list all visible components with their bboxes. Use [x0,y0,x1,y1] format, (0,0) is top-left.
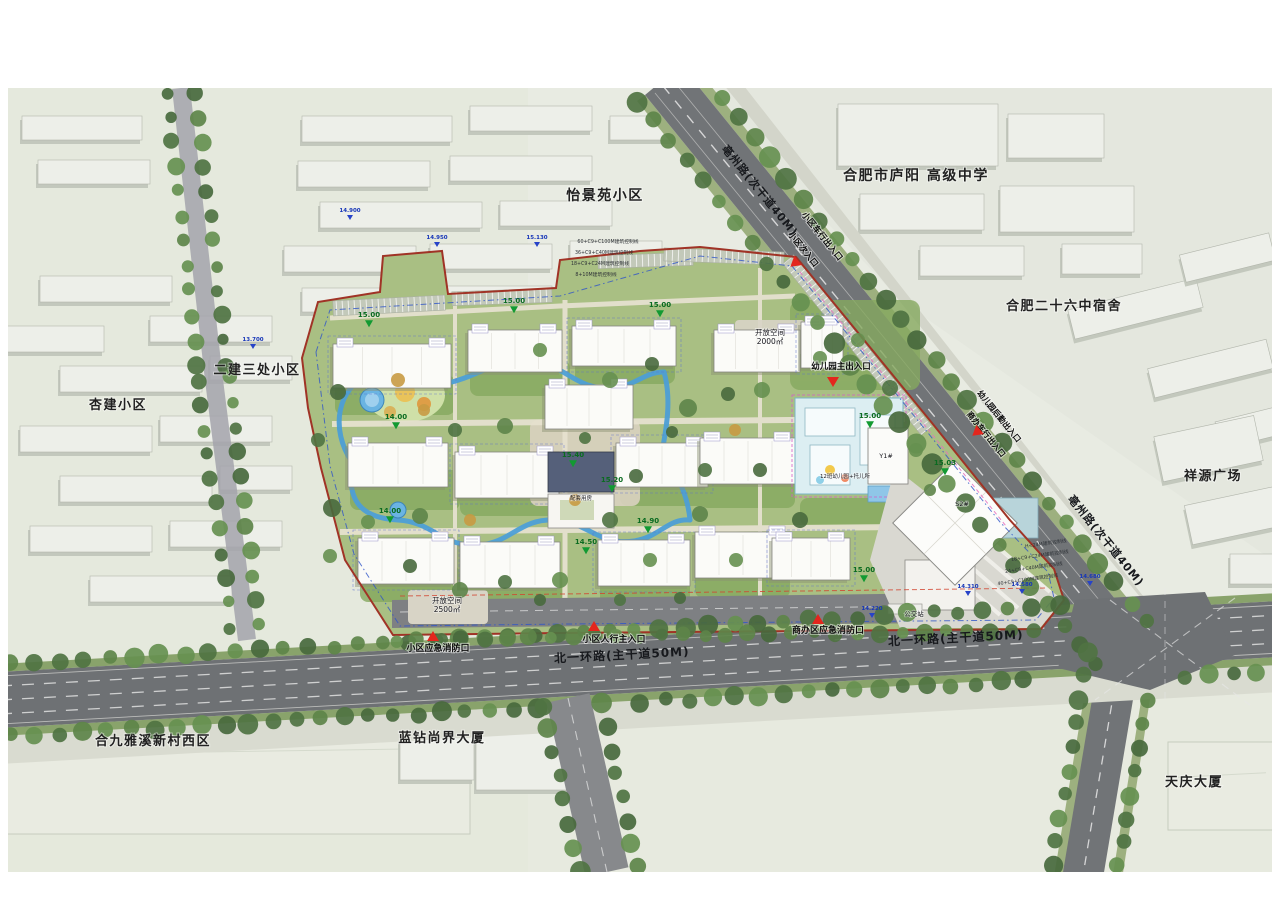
context-building [300,116,452,146]
context-building [1228,554,1280,588]
context-building [296,161,430,191]
elevation-green: 15.40 [562,451,584,459]
residential-building [542,379,633,432]
residential-building [465,324,562,375]
elevation-green: 14.00 [385,413,407,421]
area-label-no26-dorm: 合肥二十六中宿舍 [1006,298,1122,314]
area-label-tianqing-tower: 天庆大厦 [1165,774,1223,790]
control-line-1: 60+C9+C100M建筑控制线 [577,238,638,245]
context-building [858,194,984,234]
context-building [318,202,482,232]
elevation-green: 14.00 [379,507,401,515]
context-building [498,201,612,230]
context-building [448,156,592,185]
open-space-south-title: 开放空间 [432,595,462,605]
context-building [1006,114,1104,162]
elevation-green: 15.00 [649,301,671,309]
building-y1-label: Y1# [878,452,893,460]
open-space-east-title: 开放空间 [755,327,785,337]
context-building [88,576,232,606]
elevation-green: 14.50 [575,538,597,546]
open-space-south-area: 2500㎡ [434,605,461,614]
entrance-commercial-fire-label: 商办区应急消防口 [792,624,864,636]
elevation-green: 15.20 [601,476,623,484]
context-building [20,116,142,144]
context-building [38,276,172,306]
elevation-green: 15.00 [853,566,875,574]
residential-building [353,530,459,590]
residential-building [767,530,855,586]
entrance-fire-emergency-west-label: 小区应急消防口 [405,642,469,654]
context-building [468,106,592,135]
context-building [58,476,212,506]
area-label-lanzuan-shangjie: 蓝钻尚界大厦 [398,730,485,746]
elevation-blue: 14.220 [861,606,882,612]
residential-building [450,444,564,504]
elevation-blue: 14.950 [426,235,447,241]
residential-building [345,437,448,490]
context-building [1060,244,1142,278]
elevation-blue: 13.700 [242,337,263,343]
area-label-erjiansanchu: 二建三处小区 [213,362,300,378]
control-line-2: 36+C9+C40M建筑控制线 [575,249,633,256]
area-label-luyang-highschool: 合肥市庐阳 高级中学 [843,167,989,184]
entrance-kindergarten-main-label: 幼儿园主出入口 [811,361,871,372]
entrance-pedestrian-main-label: 小区人行主入口 [581,633,645,645]
area-label-xingjian: 杏建小区 [89,397,147,413]
control-line-4: 8+10M建筑控制线 [575,271,617,278]
context-building [998,186,1134,236]
context-building [58,366,202,396]
elevation-green: 15.00 [358,311,380,319]
context-building [836,104,998,170]
elevation-green: 15.03 [934,459,956,467]
residential-building [697,432,796,487]
elevation-blue: 14.310 [957,584,978,590]
elevation-blue: 14.680 [1079,574,1100,580]
site-plan-screenshot: 15.0015.0015.0014.0014.0015.4015.2014.90… [0,0,1280,905]
residential-building [328,336,456,394]
elevation-blue: 15.130 [526,235,547,241]
service-house-label: 配套用房 [570,494,593,502]
context-building [0,326,104,356]
bus-stop-label: 公交站 [904,609,924,618]
area-label-yijingyuan: 怡景苑小区 [566,187,644,204]
context-building [18,426,152,456]
context-building [36,160,150,188]
elevation-blue: 14.900 [339,208,360,214]
context-building [28,526,152,556]
area-label-hejiu-yaxi-west: 合九雅溪新村西区 [95,733,211,749]
pond-inner [365,393,379,407]
building-s2-label: S2# [955,500,969,508]
context-building [428,244,552,273]
area-label-xiangyuan-plaza: 祥源广场 [1184,468,1242,484]
elevation-green: 14.90 [637,517,659,525]
open-space-east-area: 2000㎡ [757,337,784,346]
control-line-3: 18+C9+C24M建筑控制线 [571,260,629,267]
context-building [918,246,1024,280]
elevation-green: 15.00 [859,412,881,420]
elevation-green: 15.00 [503,297,525,305]
residential-building [567,318,681,372]
master-plan-canvas: 15.0015.0015.0014.0014.0015.4015.2014.90… [0,0,1280,905]
kindergarten-label: 12班幼儿园+托儿所 [820,472,871,480]
